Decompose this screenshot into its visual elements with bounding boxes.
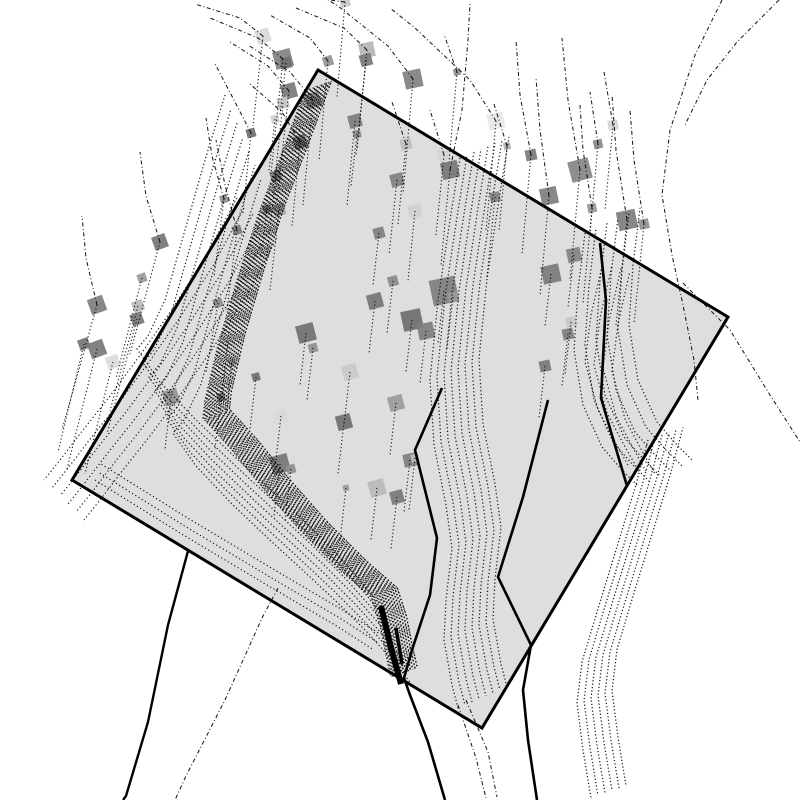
stray-line <box>580 105 592 208</box>
stray-line <box>562 38 580 170</box>
stray-line <box>536 78 549 196</box>
pin-lead-line <box>590 144 598 234</box>
stray-line <box>140 152 160 242</box>
stray-line <box>450 4 470 170</box>
figure-canvas <box>0 0 800 800</box>
stray-line <box>612 95 627 220</box>
pin-lead-line <box>58 344 84 452</box>
pin-lead-line <box>605 125 613 210</box>
stray-line <box>604 72 613 125</box>
pin-lead-line <box>130 242 160 354</box>
stray-line <box>214 62 251 133</box>
pin-square <box>339 0 351 8</box>
stray-line <box>390 8 496 121</box>
stray-line <box>630 110 644 224</box>
stray-line <box>685 0 779 125</box>
stray-line <box>175 588 278 800</box>
stray-line <box>590 92 598 144</box>
stray-line <box>206 118 224 199</box>
stray-line <box>328 0 413 79</box>
routing-visualization <box>0 0 800 800</box>
pin-lead-line <box>253 36 263 126</box>
stray-line <box>195 4 263 36</box>
stray-line <box>444 34 457 72</box>
stray-line <box>216 140 237 230</box>
partition-line <box>123 551 188 800</box>
stray-line <box>296 8 367 50</box>
stray-line <box>82 216 97 305</box>
stray-line <box>516 40 531 155</box>
